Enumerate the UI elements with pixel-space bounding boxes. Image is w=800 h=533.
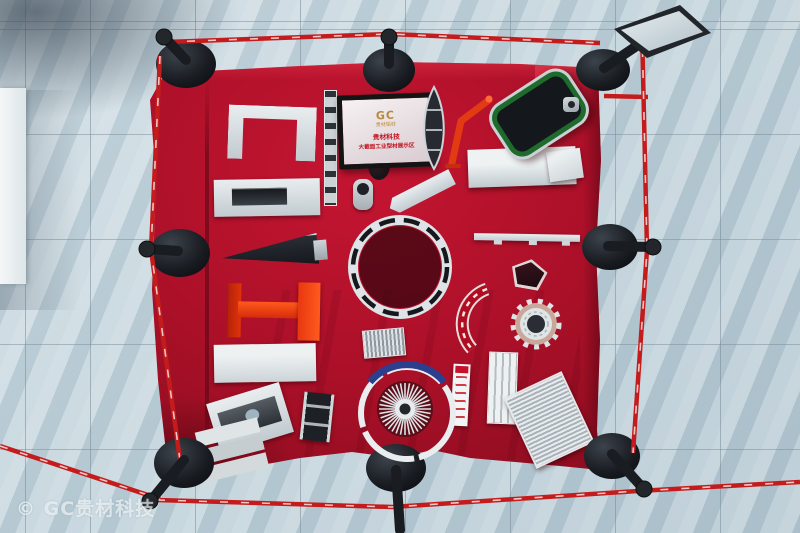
shelf-tab [529,240,537,245]
small-white-box [546,148,584,182]
label-marks [454,376,467,421]
orange-i-beam [228,281,321,341]
hex-connector-nut [563,97,579,112]
shelf-tab [494,239,502,244]
placard-line2: 大截面工业型材展示区 [358,142,414,150]
channel-rung [306,404,330,409]
white-wall-panel [0,88,26,284]
photo-stage: GC 贵材铝材 贵材科技 大截面工业型材展示区 [0,0,800,533]
handle-slot [232,188,287,206]
channel-rung [304,422,328,427]
round-socket-profile [353,179,373,210]
dark-channel-wedge [300,392,335,443]
flat-bar-profile [214,343,317,383]
gc-logo: GC [376,110,395,122]
shelf-tab [562,241,570,246]
small-heatsink-block [362,327,406,359]
handle-plate-profile [214,178,321,217]
info-placard: GC 贵材铝材 贵材科技 大截面工业型材展示区 [337,92,436,169]
labeled-strip-profile [450,364,470,427]
slotted-ladder-strip [324,90,337,206]
label-head [455,366,468,374]
watermark: © GC贵材科技 [16,494,155,521]
nut-hole [568,101,575,108]
placard-line1: 贵材科技 [373,133,400,141]
ibeam-web [238,301,302,318]
socket-hole [357,183,369,195]
dark-taper-tip [313,239,328,260]
ibeam-right-flange [297,282,320,340]
gc-logo-subtext: 贵材铝材 [376,122,396,128]
